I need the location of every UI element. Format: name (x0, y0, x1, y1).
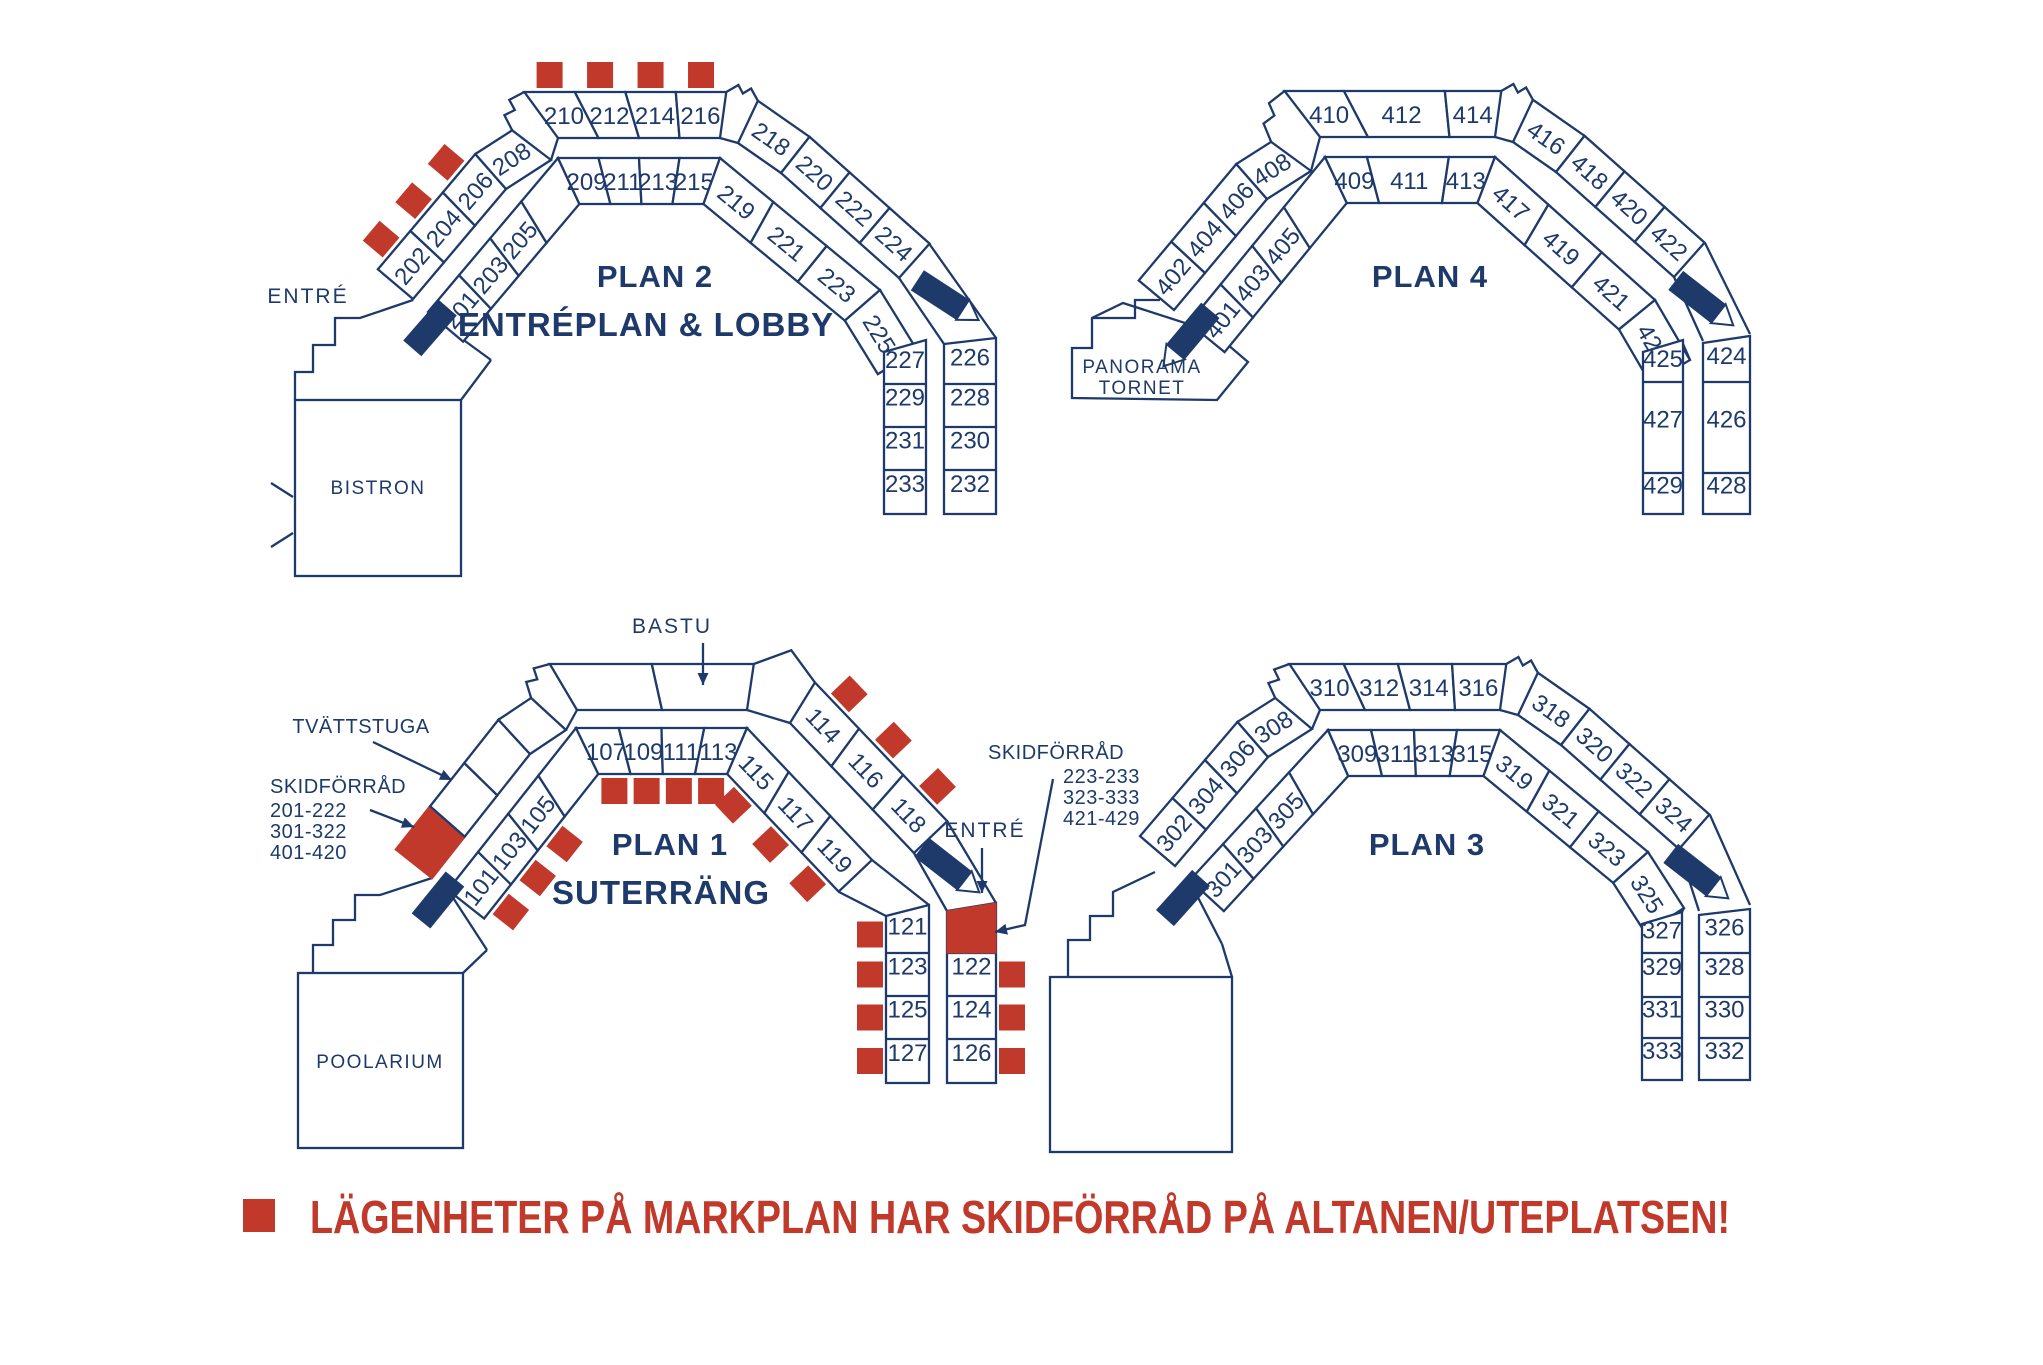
generated-floorplan-geometry: 2022042062082102122142162182202222242012… (271, 62, 1750, 1152)
building-outline (1068, 872, 1155, 977)
room-number-333: 333 (1642, 1038, 1682, 1065)
room-number-text: 127 (887, 1040, 927, 1067)
facade-notch (726, 85, 758, 101)
ski-storage-marker (634, 778, 660, 804)
building-outline (1222, 944, 1232, 977)
poolarium-label: POOLARIUM (316, 1052, 444, 1073)
ski-storage-marker (857, 1005, 883, 1031)
ski-storage-marker-rect (587, 62, 613, 88)
room-number-227: 227 (885, 347, 925, 374)
room-number-text: 424 (1706, 343, 1746, 370)
room-number-text: 330 (1704, 997, 1744, 1024)
hiss-elevator-flag: Hiss (911, 270, 985, 330)
ski-storage-marker-rect (857, 1048, 883, 1074)
room-number-text: 328 (1704, 954, 1744, 981)
facade-notch (1506, 657, 1538, 673)
room-number-text: 313 (1414, 741, 1454, 768)
room-number-text: 227 (885, 347, 925, 374)
building-outline (271, 533, 293, 547)
room-number-text: 209 (567, 169, 607, 196)
room-number-213: 213 (638, 169, 678, 196)
room-number-text: 409 (1334, 168, 1374, 195)
room-number-text: 429 (1643, 473, 1683, 500)
room-number-text: 229 (885, 385, 925, 412)
room-number-427: 427 (1643, 407, 1683, 434)
skidforrad-right-range-1: 223-233 (1063, 766, 1140, 788)
corridor-wall (1495, 137, 1513, 142)
room-number-text: 214 (635, 103, 675, 130)
room-number-121: 121 (887, 914, 927, 941)
room-number-229: 229 (885, 385, 925, 412)
room-number-text: 411 (1390, 168, 1428, 195)
ski-storage-marker (999, 962, 1025, 988)
room-number-122: 122 (951, 954, 991, 981)
room-number-314: 314 (1409, 675, 1449, 702)
building-outline (295, 300, 413, 400)
room-number-text: 310 (1310, 675, 1350, 702)
room-number-text: 226 (950, 345, 990, 372)
room-number-313: 313 (1414, 741, 1454, 768)
room-number-429: 429 (1643, 473, 1683, 500)
ski-storage-marker-rect (638, 62, 664, 88)
room-number-311: 311 (1377, 741, 1415, 768)
corridor-wall (1500, 710, 1518, 715)
room-number-124: 124 (951, 997, 991, 1024)
ski-storage-marker (857, 962, 883, 988)
ski-storage-marker-rect (999, 962, 1025, 988)
room-number-text: 109 (623, 739, 663, 766)
plan1-subtitle: SUTERRÄNG (552, 874, 770, 911)
room-number-315: 315 (1453, 741, 1493, 768)
ski-storage-marker-rect (634, 778, 660, 804)
plan2-subtitle: ENTRÉPLAN & LOBBY (458, 306, 834, 343)
room-number-text: 425 (1643, 346, 1683, 373)
legend-text: LÄGENHETER PÅ MARKPLAN HAR SKIDFÖRRÅD PÅ… (310, 1191, 1730, 1243)
ski-storage-marker (587, 62, 613, 88)
room-number-text: 426 (1706, 407, 1746, 434)
room-number-226: 226 (950, 345, 990, 372)
room-number-text: 427 (1643, 407, 1683, 434)
room-number-312: 312 (1359, 675, 1399, 702)
facade-notch (1268, 664, 1289, 698)
room-number-310: 310 (1310, 675, 1350, 702)
room-number-309: 309 (1337, 741, 1377, 768)
room-number-text: 216 (680, 103, 720, 130)
skidforrad-right-range-2: 323-333 (1063, 787, 1140, 809)
label-arrow-line (373, 742, 452, 780)
room-number-426: 426 (1706, 407, 1746, 434)
ski-storage-marker-rect (999, 1005, 1025, 1031)
ski-storage-marker-rect (666, 778, 692, 804)
room-number-326: 326 (1704, 915, 1744, 942)
room-number-210: 210 (544, 103, 584, 130)
panorama-label-2: TORNET (1099, 378, 1186, 399)
room-number-232: 232 (950, 471, 990, 498)
ski-storage-marker (688, 62, 714, 88)
ski-storage-marker (537, 62, 563, 88)
room-number-230: 230 (950, 428, 990, 455)
room-number-text: 107 (586, 739, 626, 766)
facade-notch (754, 650, 815, 682)
ski-storage-marker-rect (857, 962, 883, 988)
room-number-text: 314 (1409, 675, 1449, 702)
facade-notch (1501, 84, 1533, 100)
plan3-title: PLAN 3 (1369, 827, 1485, 862)
room-number-text: 126 (951, 1040, 991, 1067)
skidforrad-right-range-3: 421-429 (1063, 808, 1140, 830)
room-number-330: 330 (1704, 997, 1744, 1024)
room-number-425: 425 (1643, 346, 1683, 373)
room-number-332: 332 (1704, 1038, 1744, 1065)
room-number-316: 316 (1458, 675, 1498, 702)
room-number-text: 332 (1704, 1038, 1744, 1065)
room-number-125: 125 (887, 997, 927, 1024)
room-number-text: 212 (589, 103, 629, 130)
ski-storage-marker-rect (857, 1005, 883, 1031)
ski-storage-marker-rect (601, 778, 627, 804)
ski-storage-marker (666, 778, 692, 804)
room-number-216: 216 (680, 103, 720, 130)
skidforrad-right-title: SKIDFÖRRÅD (988, 741, 1124, 764)
room-number-text: 231 (885, 428, 925, 455)
corridor-wall (720, 138, 738, 143)
room-number-412: 412 (1382, 102, 1422, 129)
room-number-126: 126 (951, 1040, 991, 1067)
plan2-title: PLAN 2 (597, 259, 713, 294)
ski-storage-marker (999, 1005, 1025, 1031)
corridor-wall (747, 710, 790, 723)
room-number-text: 412 (1382, 102, 1422, 129)
room-number-424: 424 (1706, 343, 1746, 370)
skidforrad-left-range-1: 201-222 (270, 800, 347, 822)
room-number-123: 123 (887, 954, 927, 981)
room-number-text: 232 (950, 471, 990, 498)
room-number-text: 333 (1642, 1038, 1682, 1065)
facade-notch (1264, 91, 1285, 142)
label-arrow-line (995, 779, 1053, 932)
room-number-text: 329 (1642, 954, 1682, 981)
room-number-text: 228 (950, 385, 990, 412)
ski-storage-marker-rect (999, 1048, 1025, 1074)
room-number-text: 125 (887, 997, 927, 1024)
room-number-text: 326 (1704, 915, 1744, 942)
room-number-413: 413 (1446, 168, 1486, 195)
hiss-elevator-flag: Hiss (1668, 271, 1740, 335)
room-number-127: 127 (887, 1040, 927, 1067)
room-number-409: 409 (1334, 168, 1374, 195)
room-number-text: 211 (603, 169, 641, 196)
room-number-text: 122 (951, 954, 991, 981)
facade-notch (526, 664, 550, 698)
entre-label-plan1: ENTRÉ (944, 819, 1025, 842)
plan1-title: PLAN 1 (612, 827, 728, 862)
room-number-text: 413 (1446, 168, 1486, 195)
room-number-text: 327 (1642, 918, 1682, 945)
room-number-text: 213 (638, 169, 678, 196)
ski-storage-room (947, 903, 996, 953)
room-number-text: 121 (887, 914, 927, 941)
room-number-text: 331 (1642, 997, 1682, 1024)
room-number-text: 414 (1453, 102, 1493, 129)
panorama-label-1: PANORAMA (1082, 357, 1201, 378)
entre-label-plan2: ENTRÉ (267, 285, 348, 308)
skidforrad-left-range-3: 401-420 (270, 842, 347, 864)
room-number-214: 214 (635, 103, 675, 130)
room-number-text: 410 (1309, 102, 1349, 129)
skidforrad-left-range-2: 301-322 (270, 821, 347, 843)
ski-storage-marker (638, 62, 664, 88)
ski-storage-marker (857, 922, 883, 948)
floorplan-page: 2022042062082102122142162182202222242012… (0, 0, 2043, 1365)
ski-storage-marker-rect (688, 62, 714, 88)
ski-storage-marker-rect (537, 62, 563, 88)
room-number-text: 311 (1377, 741, 1415, 768)
room-number-text: 230 (950, 428, 990, 455)
room-number-414: 414 (1453, 102, 1493, 129)
floorplan-svg: 2022042062082102122142162182202222242012… (0, 0, 2043, 1365)
room-number-331: 331 (1642, 997, 1682, 1024)
room-number-text: 123 (887, 954, 927, 981)
room-number-327: 327 (1642, 918, 1682, 945)
ski-storage-marker-rect (857, 922, 883, 948)
room-number-text: 316 (1458, 675, 1498, 702)
ski-storage-marker (857, 1048, 883, 1074)
room-number-212: 212 (589, 103, 629, 130)
legend-ski-storage-swatch (243, 1199, 275, 1232)
unlabeled-large-room (1050, 977, 1232, 1152)
room-number-text: 124 (951, 997, 991, 1024)
building-outline (839, 892, 886, 916)
room-number-text: 312 (1359, 675, 1399, 702)
room-number-209: 209 (567, 169, 607, 196)
room-number-text: 210 (544, 103, 584, 130)
tvattstuga-label: TVÄTTSTUGA (292, 716, 429, 738)
room-number-text: 233 (885, 471, 925, 498)
bistron-label: BISTRON (331, 478, 426, 499)
room-number-text: 309 (1337, 741, 1377, 768)
room-number-233: 233 (885, 471, 925, 498)
room-number-211: 211 (603, 169, 641, 196)
room-number-109: 109 (623, 739, 663, 766)
room-number-111: 111 (663, 739, 699, 766)
room-number-text: 111 (663, 739, 699, 766)
ski-storage-marker (999, 1048, 1025, 1074)
room-number-text: 428 (1706, 473, 1746, 500)
bastu-label: BASTU (632, 615, 712, 638)
room-number-329: 329 (1642, 954, 1682, 981)
ski-storage-marker (601, 778, 627, 804)
room-number-428: 428 (1706, 473, 1746, 500)
room-number-411: 411 (1390, 168, 1428, 195)
room-number-228: 228 (950, 385, 990, 412)
plan4-title: PLAN 4 (1372, 259, 1488, 294)
room-number-328: 328 (1704, 954, 1744, 981)
building-outline (313, 878, 432, 973)
room-number-text: 315 (1453, 741, 1493, 768)
room-number-107: 107 (586, 739, 626, 766)
corridor-wall (551, 138, 558, 160)
facade-notch (504, 92, 524, 130)
building-outline (461, 360, 491, 400)
building-outline (872, 860, 929, 905)
room-number-231: 231 (885, 428, 925, 455)
skidforrad-left-title: SKIDFÖRRÅD (270, 775, 406, 798)
room-number-410: 410 (1309, 102, 1349, 129)
unlabeled-room (550, 664, 662, 710)
building-outline (463, 950, 487, 973)
building-outline (271, 483, 293, 497)
corridor-wall (1312, 710, 1320, 729)
